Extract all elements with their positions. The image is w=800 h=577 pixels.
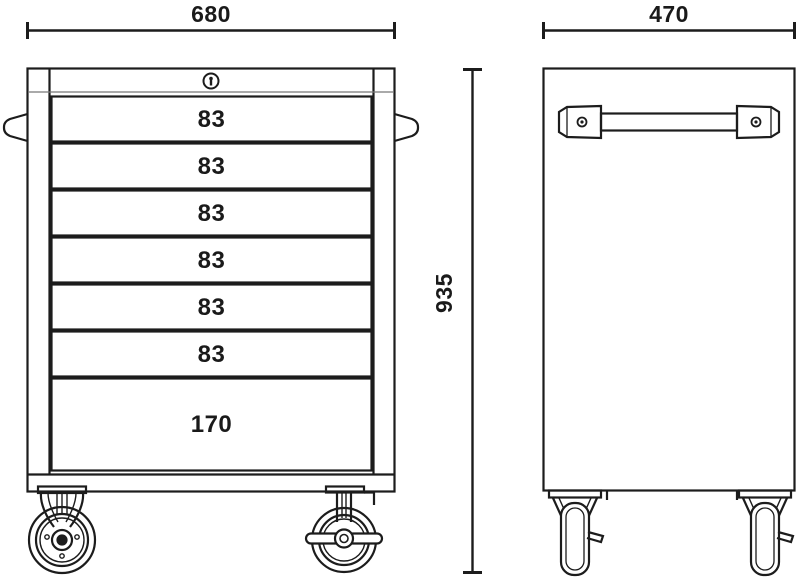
- side-view: [544, 69, 795, 576]
- front-left-bracket: [4, 114, 28, 141]
- dimension-width-label: 680: [27, 1, 395, 27]
- drawer-label-4: 83: [51, 237, 372, 284]
- dimension-height-label: 935: [431, 253, 457, 333]
- drawer-label-5: 83: [51, 284, 372, 331]
- drawer-label-2: 83: [51, 143, 372, 190]
- keyhole-lock-icon: [204, 74, 219, 89]
- technical-drawing-canvas: 680 470 935 83 83 83 83 83 83 170: [0, 0, 800, 577]
- caster-side-icon: [739, 491, 793, 576]
- front-right-bracket: [395, 114, 419, 141]
- brake-caster-front-icon: [306, 487, 382, 573]
- side-body-outline: [544, 69, 795, 491]
- drawer-label-6: 83: [51, 331, 372, 378]
- caster-side-icon: [549, 491, 603, 576]
- drawer-label-1: 83: [51, 96, 372, 143]
- side-handle-icon: [559, 106, 779, 138]
- dimension-depth-label: 470: [543, 1, 795, 27]
- swivel-caster-front-icon: [29, 487, 95, 574]
- drawer-label-7: 170: [51, 378, 372, 471]
- drawer-label-3: 83: [51, 190, 372, 237]
